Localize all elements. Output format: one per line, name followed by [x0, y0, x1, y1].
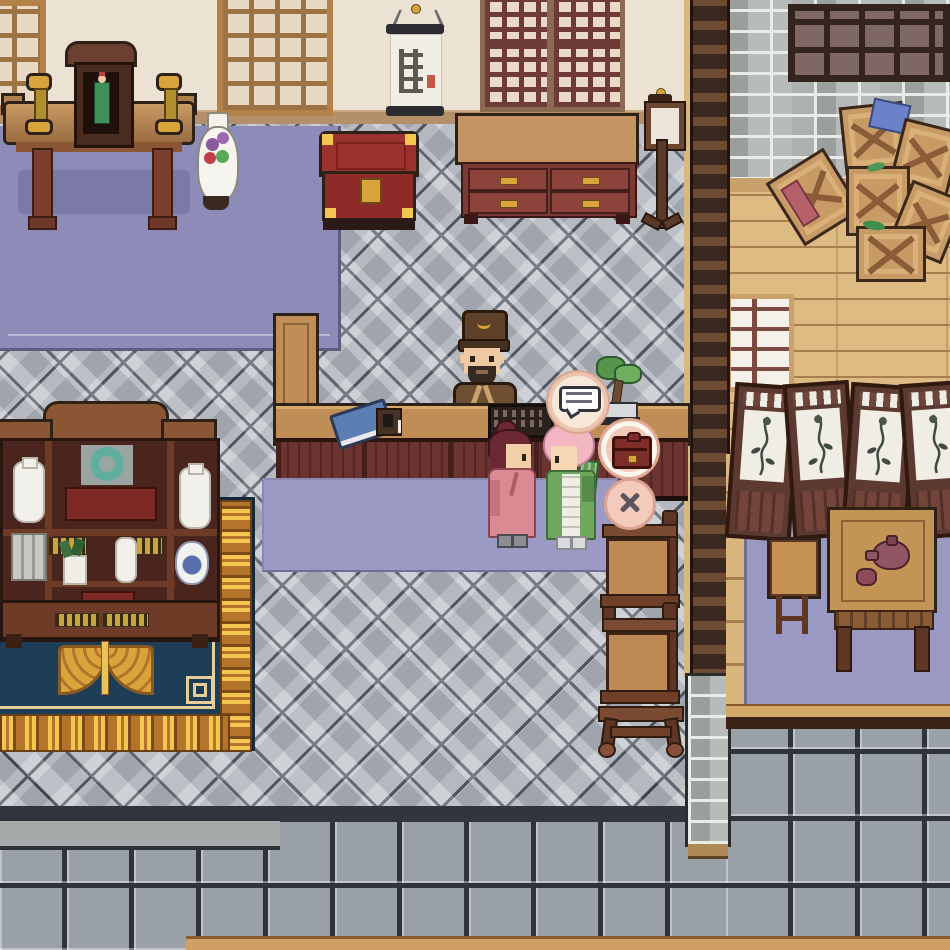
candlestick	[26, 76, 52, 136]
body-dress	[546, 470, 596, 540]
foot	[571, 536, 587, 550]
red-chest	[322, 134, 416, 232]
table-leg	[836, 626, 852, 672]
jade-disc	[81, 445, 133, 485]
deity-head	[98, 75, 106, 83]
chair-leg	[776, 594, 782, 634]
deity-crown	[99, 72, 105, 76]
foot	[512, 534, 528, 548]
teapot-spout	[865, 550, 879, 561]
chest-lid	[322, 134, 416, 174]
candlestick	[156, 76, 182, 136]
cabinet-leg	[6, 634, 22, 648]
stacked-chair	[598, 602, 682, 714]
customer-pink-hair[interactable]	[538, 420, 600, 554]
scroll-stack	[11, 533, 47, 581]
altar-leg	[152, 148, 173, 224]
sideboard-top	[458, 116, 636, 162]
customer-red-hair[interactable]	[482, 420, 538, 552]
cabinet-cornice	[46, 404, 166, 440]
right-wood-bar	[726, 717, 950, 729]
bonsai-trunk	[611, 379, 623, 404]
tea-table	[830, 510, 934, 668]
body-robe	[488, 468, 536, 538]
sideboard-drawer	[468, 191, 548, 214]
lattice-window-a	[480, 0, 552, 112]
scroll-paper	[390, 34, 442, 108]
teacup	[856, 568, 877, 586]
blue-white-jar	[175, 541, 209, 585]
teapot	[872, 540, 910, 570]
sideboard-drawer	[468, 168, 548, 191]
scroll-rod-top	[386, 24, 444, 34]
face	[551, 446, 577, 472]
shrine-roof	[68, 44, 134, 64]
hat-crest	[477, 317, 491, 329]
vase-body	[197, 126, 239, 202]
face	[506, 444, 531, 470]
pillar-ladder	[690, 0, 730, 678]
apron	[562, 474, 580, 536]
bottom-wood-edge	[186, 936, 950, 950]
scroll-pin	[411, 4, 421, 14]
chest-front	[325, 174, 413, 218]
shrine-cabinet	[68, 44, 134, 144]
shopkeeper-ear	[460, 354, 465, 363]
incense-stick	[398, 420, 401, 433]
red-box	[65, 487, 157, 521]
table-leg	[914, 626, 930, 672]
cabinet-leg	[192, 634, 208, 648]
vase-base	[203, 196, 229, 210]
sideboard	[458, 116, 636, 224]
porcelain-vase	[13, 461, 45, 523]
porcelain-vase	[179, 467, 211, 529]
carpet-corner-ornament	[186, 676, 214, 704]
scroll-seal	[427, 75, 435, 88]
close-button[interactable]	[604, 478, 656, 530]
stool-base	[596, 706, 684, 754]
crate	[856, 226, 926, 282]
base-plaque	[55, 613, 99, 627]
cabinet-base-bar	[0, 600, 220, 640]
potted-plant	[61, 541, 85, 581]
brick-window	[788, 4, 950, 82]
small-vase	[115, 537, 137, 583]
sideboard-leg	[464, 214, 478, 224]
chair-seat	[770, 540, 818, 596]
gold-ornament	[58, 645, 150, 693]
teapot-lid	[886, 535, 898, 546]
scroll-calligraphy	[399, 49, 423, 93]
shop-bag-button[interactable]	[598, 418, 660, 480]
foot	[497, 534, 513, 548]
foot	[556, 536, 572, 550]
lattice-window-b	[549, 0, 625, 112]
table-top	[830, 510, 934, 610]
game-viewport	[0, 0, 950, 950]
meander-border-bottom	[0, 714, 230, 752]
altar-leg	[32, 148, 53, 224]
speech-bubble-icon	[559, 386, 601, 412]
step-threshold	[0, 817, 280, 850]
altar-foot	[148, 216, 177, 230]
dialogue-indicator[interactable]	[548, 372, 608, 432]
pillar-brick-base	[688, 676, 728, 844]
counter-arm	[276, 316, 316, 412]
square-tile-floor-right	[726, 728, 950, 950]
pillar-wood-cap	[688, 844, 728, 859]
sideboard-leg	[616, 214, 630, 224]
shoji-door	[726, 294, 794, 392]
floor-lamp	[640, 88, 680, 230]
chair-leg	[802, 594, 808, 634]
shopkeeper-ear	[499, 354, 504, 363]
hanging-scroll	[386, 4, 444, 120]
side-chair	[768, 536, 816, 640]
base-plaque	[103, 613, 149, 627]
chair-stretcher	[776, 616, 808, 621]
chest-base	[323, 218, 415, 230]
altar-foot	[28, 216, 57, 230]
chair-stack	[596, 510, 686, 754]
lamp-post	[656, 139, 668, 229]
chest-clasp	[360, 178, 382, 204]
deity-statue[interactable]	[94, 82, 110, 124]
display-cabinet	[0, 398, 214, 650]
scroll-rod-bottom	[386, 106, 444, 116]
shrine-niche	[83, 72, 119, 134]
divider-pillar	[684, 0, 730, 678]
flower-vase	[196, 110, 236, 220]
satchel-bag-icon	[612, 436, 652, 469]
sideboard-drawer	[550, 168, 630, 191]
sideboard-drawer	[550, 191, 630, 214]
